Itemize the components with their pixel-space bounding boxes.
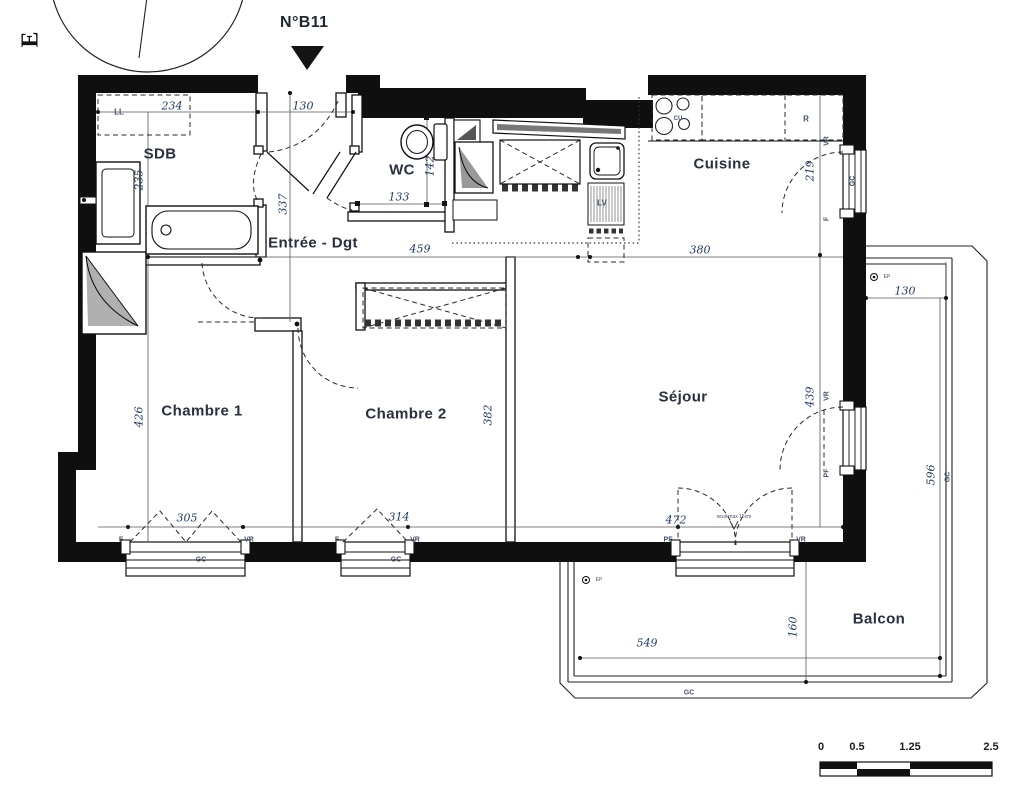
scale-tick-3: 2.5 (983, 741, 998, 753)
rain-pipe-label-1: EP (884, 274, 891, 280)
dim-sdb-depth: 235 (133, 170, 146, 191)
scale-tick-2: 1.25 (899, 741, 920, 753)
room-label-bedroom1: Chambre 1 (161, 403, 242, 420)
bathtub (146, 206, 258, 254)
dimension-lines (96, 93, 946, 682)
living-window-swing (780, 407, 843, 470)
bedroom1-window (121, 540, 250, 576)
window-label-ch1: F (119, 537, 123, 544)
balcony-railing (560, 246, 987, 698)
floorplan-linework (0, 0, 1028, 800)
rain-pipe-label-2: EP (596, 577, 603, 583)
shutter-label-living: VR (796, 537, 806, 544)
dim-kitchen-width: 380 (690, 244, 711, 257)
window-label-kitchen: F (824, 217, 831, 221)
wc-door-arc (327, 198, 352, 210)
french-window-label-living: PF (664, 537, 673, 544)
entry-arrow-icon (291, 46, 324, 70)
rain-pipe-symbols (583, 274, 878, 584)
living-side-window (840, 401, 866, 475)
kitchen-sink (590, 143, 624, 179)
dim-wc-width: 133 (389, 191, 410, 204)
dim-balcony-top: 130 (895, 285, 916, 298)
entry-cabinet (453, 200, 497, 220)
dim-balcony-depth: 160 (787, 617, 800, 638)
bedroom1-door-arc (202, 263, 262, 318)
bedroom2-door-arc (298, 328, 358, 388)
dim-kitchen-depth: 219 (804, 161, 817, 182)
dim-balcony-width: 549 (637, 637, 658, 650)
room-label-bedroom2: Chambre 2 (365, 406, 446, 423)
door-leaves (267, 140, 843, 529)
fixtures (80, 98, 878, 584)
cooktop-label: CU (674, 116, 683, 122)
dim-bedroom1-depth: 426 (133, 407, 146, 428)
dim-living-depth: 439 (804, 387, 817, 408)
dishwasher-label: LV (597, 199, 607, 208)
compass-graphic (50, 0, 246, 72)
technical-shaft (82, 252, 146, 334)
sdb-door-arc (253, 154, 261, 203)
room-label-entry: Entrée - Dgt (268, 235, 358, 252)
shutter-label-ch2: VR (410, 537, 420, 544)
cooktop-burners (656, 98, 690, 135)
dim-sdb-width: 234 (162, 100, 183, 113)
counter-outline (702, 95, 843, 140)
room-label-kitchen: Cuisine (694, 156, 751, 173)
unit-number: N°B11 (280, 14, 328, 32)
washing-machine-label: LL (114, 108, 124, 117)
dim-bedroom1-window: 305 (177, 512, 198, 525)
fridge-label: R (803, 115, 809, 124)
bedroom2-window (336, 540, 414, 576)
scale-bar-graphic (820, 762, 992, 776)
threshold-arrow (730, 521, 738, 529)
compass-east-label: E (18, 27, 45, 53)
room-label-balcony: Balcon (853, 611, 905, 628)
scale-tick-0: 0 (818, 741, 824, 753)
railing-label-kitchen-window: GC (850, 176, 857, 187)
room-label-wc: WC (389, 162, 415, 179)
dim-living-width: 472 (666, 514, 687, 527)
bedroom2-closet (363, 288, 506, 328)
scale-tick-1: 0.5 (849, 741, 864, 753)
shutter-label-kitchen: VR (824, 136, 831, 146)
vent-duct (454, 120, 493, 193)
shutter-label-ch1: VR (244, 537, 254, 544)
railing-label-ch2: GC (391, 557, 402, 564)
dim-bedroom2-window: 314 (389, 511, 410, 524)
railing-label-ch1: GC (196, 557, 207, 564)
living-french-door (671, 540, 799, 576)
threshold-note: seuil max 15cm (717, 514, 752, 520)
railing-label-balcony-bottom: GC (684, 690, 695, 697)
floorplan-page: N°B11 E SDB WC Cuisine Entrée - Dgt Cham… (0, 0, 1028, 800)
dim-wc-depth: 142 (424, 156, 437, 177)
shutter-label-living-side: VR (824, 391, 831, 401)
room-label-living: Séjour (658, 389, 707, 406)
railing-label-balcony-side: GC (945, 472, 952, 483)
french-window-label-living-side: PF (824, 469, 831, 478)
window-label-ch2: F (335, 537, 339, 544)
room-label-sdb: SDB (144, 146, 177, 163)
dim-entry-depth: 337 (277, 194, 290, 215)
dim-balcony-length: 596 (925, 465, 938, 486)
dim-entry-door: 130 (293, 100, 314, 113)
dim-entry-length: 459 (410, 243, 431, 256)
dim-bedroom2-depth: 382 (482, 405, 495, 426)
